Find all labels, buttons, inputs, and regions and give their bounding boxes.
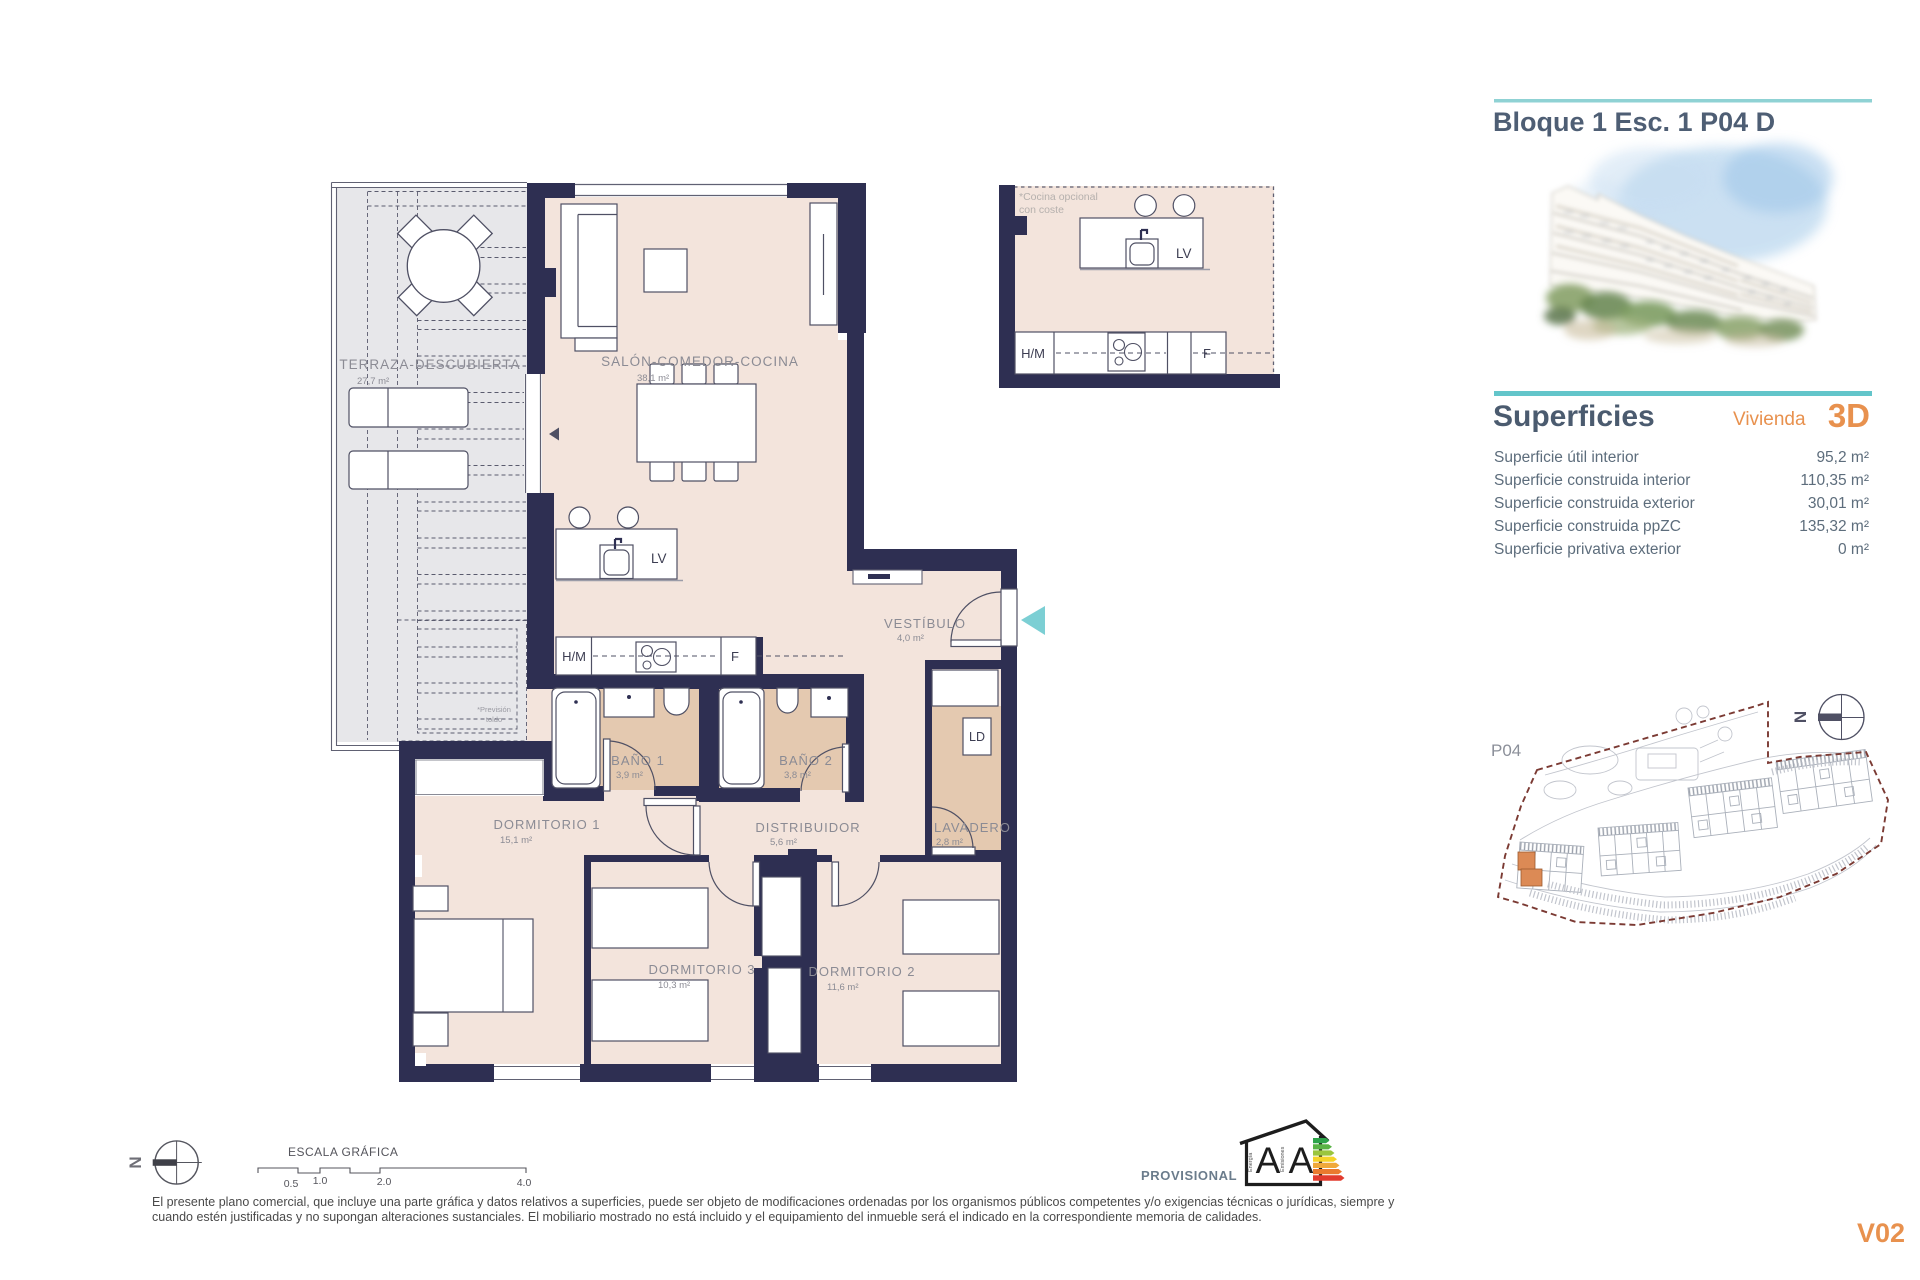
svg-text:SALÓN-COMEDOR-COCINA: SALÓN-COMEDOR-COCINA	[601, 354, 799, 369]
svg-text:3,8 m²: 3,8 m²	[784, 770, 811, 781]
svg-text:V02: V02	[1857, 1218, 1905, 1248]
svg-text:Superficie construida exterior: Superficie construida exterior	[1494, 495, 1695, 512]
svg-text:cuando estén justificadas y no: cuando estén justificadas y no supongan …	[152, 1210, 1262, 1224]
svg-text:LV: LV	[651, 551, 667, 566]
svg-text:38,1 m²: 38,1 m²	[637, 373, 669, 384]
svg-text:3,9 m²: 3,9 m²	[616, 770, 643, 781]
svg-text:ESCALA GRÁFICA: ESCALA GRÁFICA	[288, 1144, 398, 1159]
svg-text:Superficie construida interior: Superficie construida interior	[1494, 472, 1690, 489]
svg-text:DORMITORIO 3: DORMITORIO 3	[648, 962, 755, 977]
svg-text:H/M: H/M	[1021, 346, 1045, 361]
svg-text:DISTRIBUIDOR: DISTRIBUIDOR	[755, 820, 860, 835]
svg-text:Energía: Energía	[1248, 1152, 1254, 1172]
svg-text:con coste: con coste	[1019, 204, 1064, 216]
svg-text:110,35 m²: 110,35 m²	[1800, 472, 1869, 489]
svg-text:0.5: 0.5	[284, 1178, 299, 1190]
svg-text:2.0: 2.0	[377, 1176, 392, 1188]
svg-text:11,6 m²: 11,6 m²	[827, 982, 859, 993]
svg-text:15,1 m²: 15,1 m²	[500, 835, 532, 846]
svg-text:Superficie útil interior: Superficie útil interior	[1494, 449, 1639, 466]
svg-text:27,7 m²: 27,7 m²	[357, 376, 389, 387]
svg-text:VESTÍBULO: VESTÍBULO	[884, 616, 966, 631]
svg-text:Superficie privativa exterior: Superficie privativa exterior	[1494, 541, 1681, 558]
svg-text:N: N	[1791, 711, 1810, 723]
svg-text:5,6 m²: 5,6 m²	[770, 837, 797, 848]
svg-text:0 m²: 0 m²	[1838, 541, 1869, 558]
svg-text:*Cocina opcional: *Cocina opcional	[1019, 191, 1098, 203]
svg-text:F: F	[1203, 346, 1211, 361]
svg-text:BAÑO 2: BAÑO 2	[779, 753, 833, 768]
svg-text:10,3 m²: 10,3 m²	[658, 980, 690, 991]
svg-text:TERRAZA-DESCUBIERTA: TERRAZA-DESCUBIERTA	[339, 357, 520, 372]
svg-text:Superficies: Superficies	[1493, 400, 1655, 433]
svg-text:LV: LV	[1176, 246, 1192, 261]
svg-text:A: A	[1289, 1140, 1314, 1181]
svg-text:4,0 m²: 4,0 m²	[897, 633, 924, 644]
svg-text:95,2 m²: 95,2 m²	[1816, 449, 1869, 466]
svg-text:Emisiones: Emisiones	[1280, 1146, 1286, 1172]
svg-text:2,8 m²: 2,8 m²	[936, 837, 963, 848]
svg-text:toldo: toldo	[486, 715, 502, 724]
svg-text:4.0: 4.0	[517, 1177, 532, 1189]
svg-text:F: F	[731, 649, 739, 664]
svg-text:Bloque 1 Esc. 1 P04 D: Bloque 1 Esc. 1 P04 D	[1493, 107, 1775, 137]
svg-text:BAÑO 1: BAÑO 1	[611, 753, 665, 768]
svg-text:LD: LD	[969, 730, 985, 744]
svg-text:135,32 m²: 135,32 m²	[1799, 518, 1869, 535]
svg-text:El presente plano comercial, q: El presente plano comercial, que incluye…	[152, 1195, 1395, 1209]
svg-text:Vivienda: Vivienda	[1733, 409, 1806, 430]
svg-text:3D: 3D	[1828, 397, 1870, 434]
svg-text:Superficie construida ppZC: Superficie construida ppZC	[1494, 518, 1681, 535]
svg-text:DORMITORIO 2: DORMITORIO 2	[808, 964, 915, 979]
svg-text:LAVADERO: LAVADERO	[934, 820, 1011, 835]
svg-text:PROVISIONAL: PROVISIONAL	[1141, 1168, 1237, 1183]
svg-text:DORMITORIO 1: DORMITORIO 1	[493, 817, 600, 832]
svg-text:*Previsión: *Previsión	[477, 705, 511, 714]
svg-text:N: N	[126, 1156, 145, 1168]
svg-text:H/M: H/M	[562, 649, 586, 664]
svg-text:P04: P04	[1491, 741, 1521, 760]
svg-text:A: A	[1256, 1140, 1281, 1181]
svg-text:1.0: 1.0	[313, 1175, 328, 1187]
svg-text:30,01 m²: 30,01 m²	[1808, 495, 1869, 512]
